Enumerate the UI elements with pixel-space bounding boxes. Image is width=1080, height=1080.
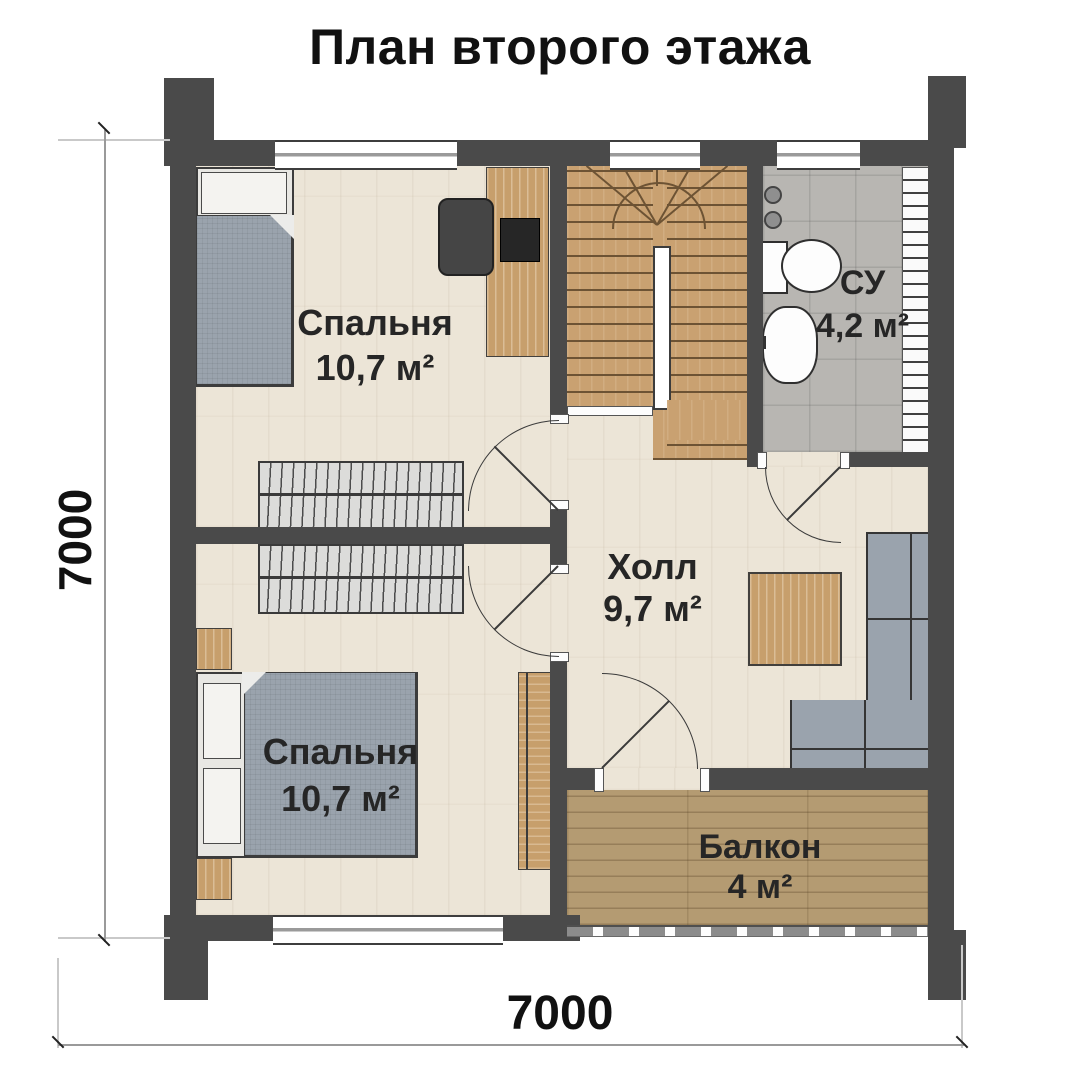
dimension-label-bottom: 7000 [460, 986, 660, 1041]
staircase [567, 166, 747, 460]
tall-cabinet [518, 672, 552, 870]
blanket-fold [242, 672, 266, 696]
wardrobe [258, 544, 464, 614]
room-label-hall: Холл 9,7 м² [560, 546, 745, 630]
stair-last-tread [667, 444, 747, 446]
pillow [201, 172, 287, 214]
pillar-top-right [928, 76, 966, 148]
wall-bathroom-bottom [840, 452, 954, 467]
room-label-bedroom-top: Спальня 10,7 м² [250, 300, 500, 390]
door-jamb [840, 452, 850, 469]
extension-line [961, 945, 963, 1048]
door-jamb [594, 768, 604, 792]
room-name: Холл [560, 546, 745, 588]
pillar-top-left [164, 78, 214, 166]
room-label-bedroom-bottom: Спальня 10,7 м² [218, 728, 463, 822]
extension-line [57, 958, 59, 1048]
window-stairwell [610, 140, 700, 170]
extension-line [58, 937, 170, 939]
room-area: 4 м² [660, 867, 860, 907]
dimension-line-bottom [58, 1044, 964, 1046]
nightstand [196, 628, 232, 670]
stair-left-flight-end [567, 406, 653, 416]
corner-sofa-vertical [866, 532, 932, 706]
door-jamb [700, 768, 710, 792]
extension-line [58, 139, 170, 141]
room-name: Балкон [660, 827, 860, 867]
room-area: 4,2 м² [790, 305, 935, 348]
floor-plan-canvas: План второго этажа [0, 0, 1080, 1080]
dimension-line-left [104, 130, 106, 942]
desk-chair [438, 198, 494, 276]
page-title: План второго этажа [60, 18, 1060, 76]
room-label-bathroom: СУ 4,2 м² [790, 262, 935, 348]
computer-monitor [500, 218, 540, 262]
blanket-fold [270, 215, 294, 239]
coffee-table [748, 572, 842, 666]
valve-icon [764, 211, 782, 229]
room-label-balcony: Балкон 4 м² [660, 827, 860, 907]
wall-bedroom-stairs [550, 140, 567, 422]
valve-icon [764, 186, 782, 204]
window-top-bedroom [275, 140, 457, 170]
wardrobe [258, 461, 464, 531]
balcony-railing [567, 925, 928, 937]
stair-arrow-patch [667, 400, 747, 440]
stair-landing-floor [567, 416, 653, 460]
wall-left [170, 140, 196, 935]
room-area: 9,7 м² [560, 588, 745, 630]
stair-handrail [653, 246, 671, 410]
nightstand [196, 858, 232, 900]
doorway-bathroom [765, 452, 840, 467]
wall-hall-balcony [700, 768, 954, 790]
window-bathroom [777, 140, 860, 170]
wall-stairs-bathroom [747, 140, 763, 467]
dimension-label-left: 7000 [48, 480, 98, 600]
room-area: 10,7 м² [218, 775, 463, 822]
corner-sofa-horizontal [790, 700, 932, 770]
window-bottom-bedroom [273, 915, 503, 945]
room-name: Спальня [250, 300, 500, 345]
wall-right [928, 140, 954, 934]
room-name: СУ [790, 262, 935, 305]
wall-bedroom-hall [550, 660, 567, 915]
doorway-balcony [602, 768, 700, 790]
room-area: 10,7 м² [250, 345, 500, 390]
room-name: Спальня [218, 728, 463, 775]
wall-between-bedrooms [196, 527, 550, 544]
